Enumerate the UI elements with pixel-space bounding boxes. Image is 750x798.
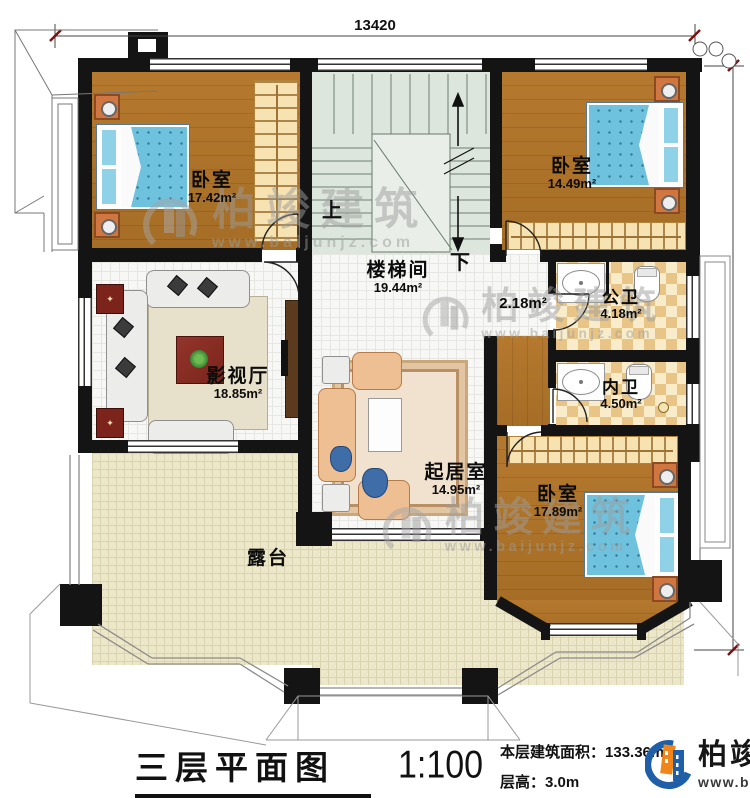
room-label-media-room: 影视厅18.85m² [178, 366, 298, 402]
pillar [60, 584, 102, 626]
side-table [322, 356, 350, 384]
corridor-floor [497, 336, 550, 426]
brand-logo: 柏竣建筑 www.baijunjz.com [645, 737, 750, 793]
room-label-bedroom-top-right: 卧室14.49m² [512, 156, 632, 192]
person-figure [330, 446, 352, 472]
person-figure [362, 468, 388, 498]
nightstand [654, 76, 680, 102]
window [150, 58, 290, 71]
nightstand [652, 462, 678, 488]
room-label-hallway-area: 2.18m² [473, 296, 573, 313]
floor-plan-page: ✦ ✦ [0, 0, 750, 798]
pillar [462, 668, 498, 704]
room-label-bedroom-top-left: 卧室17.42m² [152, 170, 272, 206]
wall-segment [300, 58, 312, 250]
bay-window-cap [541, 623, 550, 640]
side-table [322, 484, 350, 512]
top-dimension-value: 13420 [354, 17, 396, 34]
stair-up-label: 上 [322, 194, 342, 223]
wall-segment [556, 350, 686, 362]
wall-segment [296, 248, 312, 262]
nightstand [652, 576, 678, 602]
window [78, 298, 92, 386]
bed-pillows [99, 127, 119, 207]
bay-window-cap [637, 623, 646, 640]
floor-height-label: 层高： [500, 774, 545, 791]
stair-down-label: 下 [450, 246, 470, 275]
chimney-core [138, 39, 156, 52]
wall-segment [497, 425, 507, 436]
room-label-terrace: 露台 [218, 548, 318, 569]
dimension-tick [689, 30, 700, 41]
brand-logo-icon [645, 737, 691, 793]
room-label-public-bathroom: 公卫4.18m² [556, 288, 686, 322]
window [535, 58, 647, 71]
side-cabinet: ✦ [96, 408, 124, 438]
bed-pillows [657, 495, 677, 575]
plan-title-group: 三层平面图 [135, 741, 371, 798]
area-label: 本层建筑面积： [500, 744, 605, 761]
plan-stats: 本层建筑面积：133.36m² 层高：3.0m [500, 741, 669, 792]
wall-segment [78, 248, 262, 262]
dimension-tick [50, 30, 61, 41]
brand-url: www.baijunjz.com [698, 774, 750, 790]
window [686, 384, 700, 424]
room-label-private-bathroom: 内卫4.50m² [556, 378, 686, 412]
room-label-bedroom-bottom-right: 卧室17.89m² [498, 484, 618, 520]
wall-segment [540, 250, 686, 262]
floor-height-value: 3.0m [545, 774, 579, 791]
brand-name: 柏竣建筑 [698, 741, 750, 770]
window [318, 58, 482, 71]
wall-segment [480, 528, 497, 541]
pillar [682, 560, 722, 602]
nightstand [94, 212, 120, 238]
plan-scale: 1:100 [398, 743, 483, 788]
dimension-tick [728, 60, 739, 71]
right-dimension-value: 13200 [715, 337, 732, 379]
wall-segment [490, 58, 502, 228]
room-label-stairwell: 楼梯间19.44m² [338, 260, 458, 296]
room-label-living-room: 起居室14.95m² [396, 462, 516, 498]
pillar [296, 512, 332, 546]
title-underline [135, 794, 371, 798]
wardrobe [507, 436, 678, 464]
coffee-table [368, 398, 402, 452]
window [332, 528, 480, 541]
bed-pillows [661, 105, 681, 185]
wall-segment [541, 425, 687, 436]
title-block: 三层平面图 1:100 本层建筑面积：133.36m² 层高：3.0m 柏竣建筑… [0, 735, 750, 798]
window [686, 276, 700, 338]
wardrobe [254, 80, 298, 242]
bay-window [550, 623, 637, 636]
wall-segment [298, 262, 312, 528]
dimension-tick [728, 644, 739, 655]
wall-segment [548, 254, 556, 294]
window [128, 440, 238, 453]
pillar [284, 668, 320, 704]
nightstand [654, 188, 680, 214]
wardrobe [506, 222, 686, 250]
side-cabinet: ✦ [96, 284, 124, 314]
armchair [352, 352, 402, 390]
wall-segment [548, 330, 556, 388]
stairwell-floor [312, 72, 490, 254]
plan-title: 三层平面图 [135, 741, 371, 789]
nightstand [94, 94, 120, 120]
wall-segment [490, 250, 506, 262]
